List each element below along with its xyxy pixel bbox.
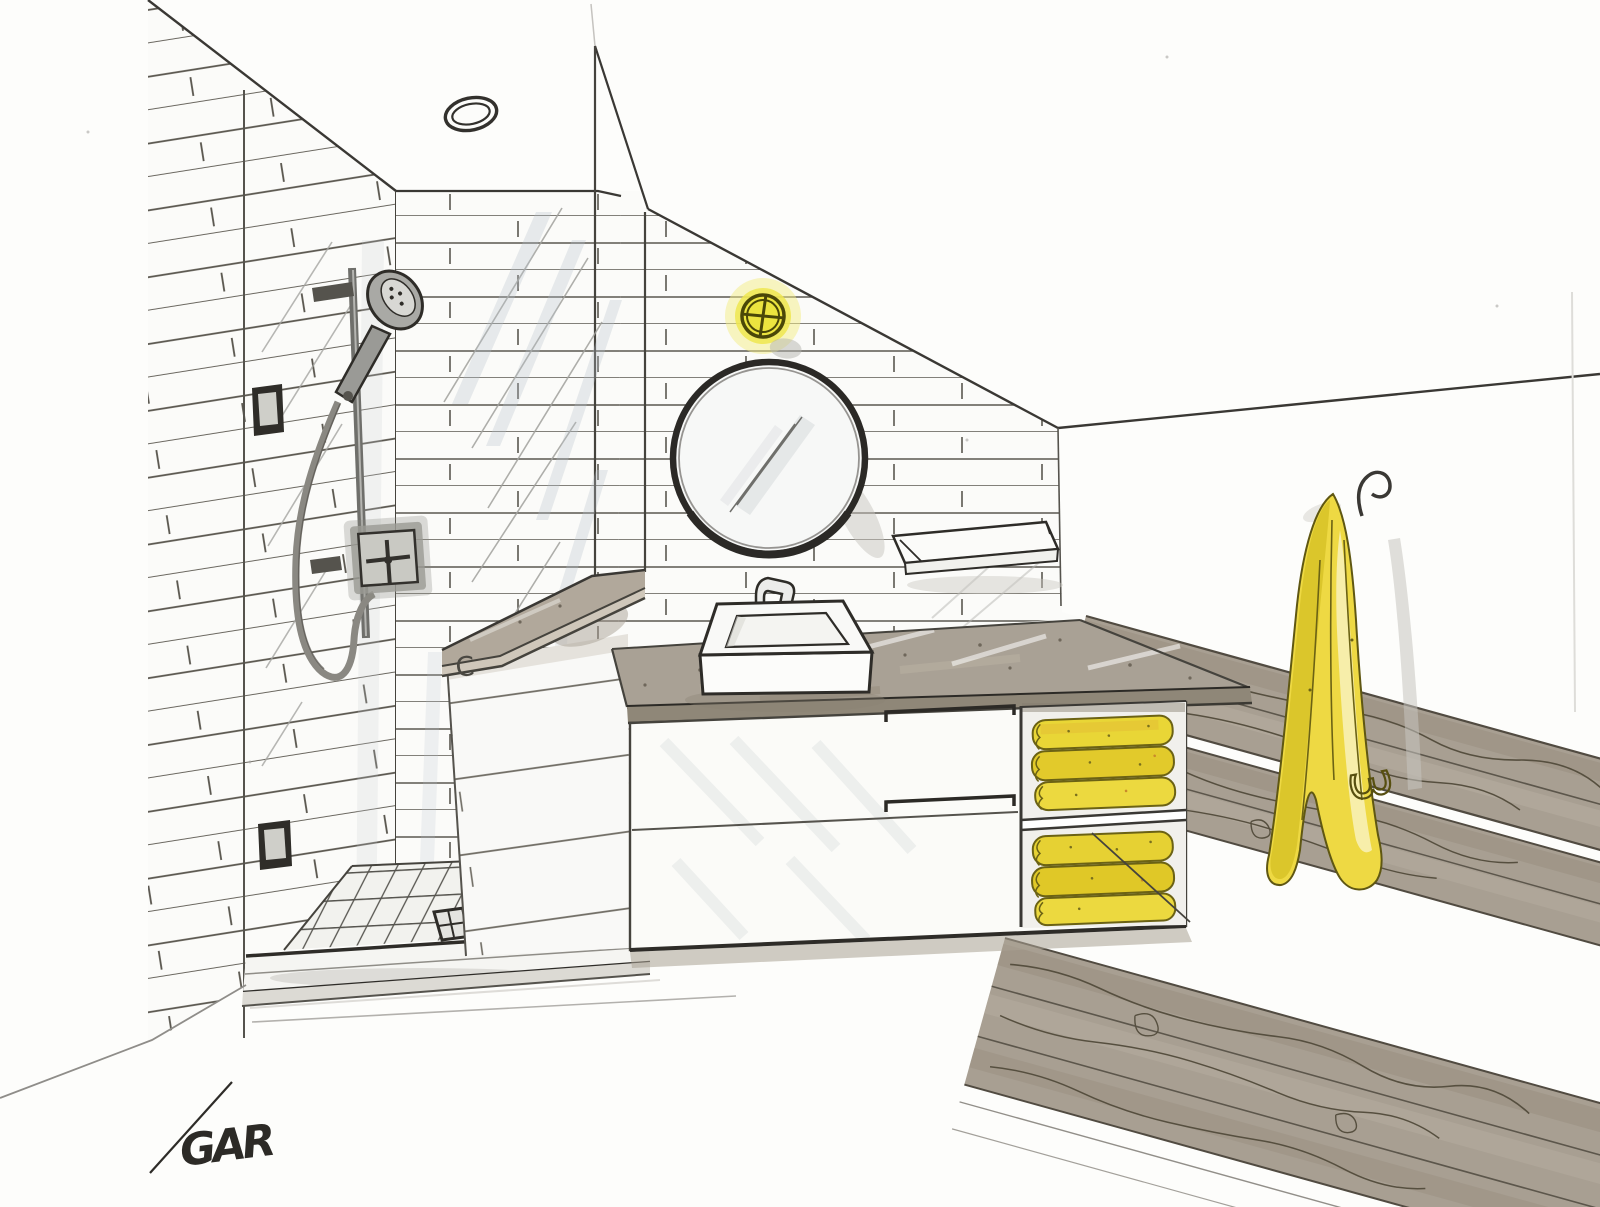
towel-stack-top — [1030, 715, 1175, 811]
towel-ledge — [893, 522, 1063, 594]
door-hinge-bottom-icon — [258, 820, 292, 870]
sketch-page: C — [0, 0, 1600, 1207]
shower-valve — [343, 515, 432, 601]
wall-mark: C — [454, 651, 475, 684]
towel-stack-bottom — [1030, 831, 1175, 926]
door-hinge-top-icon — [252, 384, 284, 436]
towel-shelves — [1021, 701, 1190, 928]
bathroom-sketch: C — [0, 0, 1600, 1207]
vanity-cabinet — [630, 701, 1192, 968]
